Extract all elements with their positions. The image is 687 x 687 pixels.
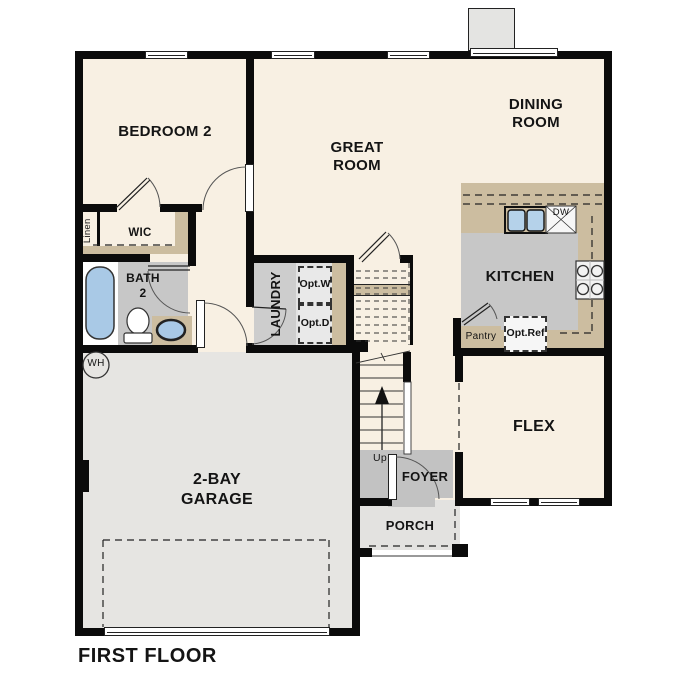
label-great-room: GREAT ROOM bbox=[307, 139, 407, 176]
kitchen-sink-basin-left bbox=[508, 210, 525, 231]
opt-dryer-label-2: D bbox=[322, 317, 330, 329]
label-up: Up bbox=[366, 452, 394, 465]
kitchen-sink-basin-right bbox=[527, 210, 544, 231]
opt-washer-label-1: Opt. bbox=[300, 278, 321, 290]
toilet-tank bbox=[124, 333, 152, 343]
toilet-bowl bbox=[127, 308, 149, 334]
wic-door-arc bbox=[148, 178, 160, 207]
label-bath2: BATH 2 bbox=[121, 271, 165, 300]
label-wh: WH bbox=[85, 358, 107, 370]
label-pantry: Pantry bbox=[459, 331, 503, 343]
opt-ref-label-1: Opt. bbox=[507, 327, 528, 339]
stairs-break-line bbox=[356, 351, 410, 363]
stairs-upper-dashed-treads bbox=[356, 263, 409, 345]
label-linen: Linen bbox=[82, 209, 94, 253]
label-dining-room: DINING ROOM bbox=[486, 96, 586, 133]
opt-ref-label-2: Ref bbox=[528, 327, 545, 339]
stairs-door-leaf bbox=[359, 232, 389, 262]
opt-dryer-box: Opt.D bbox=[298, 304, 332, 344]
pantry-door-leaf bbox=[462, 303, 490, 325]
pantry-door-arc bbox=[489, 304, 497, 319]
label-garage: 2-BAY GARAGE bbox=[157, 470, 277, 509]
opt-ref-box: Opt.Ref bbox=[504, 316, 547, 352]
bedroom2-door-arc bbox=[203, 167, 246, 210]
label-flex: FLEX bbox=[484, 417, 584, 437]
label-wic: WIC bbox=[110, 226, 170, 240]
bath-sink bbox=[157, 320, 185, 340]
stairs-handrail bbox=[404, 382, 411, 454]
label-foyer: FOYER bbox=[383, 469, 467, 485]
opt-washer-box: Opt.W bbox=[298, 266, 332, 304]
label-kitchen: KITCHEN bbox=[460, 268, 580, 286]
stairs-door-arc bbox=[388, 233, 400, 259]
dashed-lines bbox=[93, 195, 603, 627]
stairs bbox=[356, 263, 411, 454]
opt-dryer-label-1: Opt. bbox=[301, 317, 322, 329]
garage-door-track bbox=[103, 540, 329, 627]
stairs-up-arrow-head bbox=[375, 386, 389, 404]
label-porch: PORCH bbox=[368, 518, 452, 534]
floor-plan: Opt.W Opt.D Opt.Ref BEDROOM 2 GREAT ROOM… bbox=[0, 0, 687, 687]
opt-washer-label-2: W bbox=[321, 278, 331, 290]
plan-title: FIRST FLOOR bbox=[78, 644, 318, 668]
label-dw: DW bbox=[548, 207, 574, 219]
wic-door-leaf bbox=[116, 178, 150, 210]
hall-garage-door-arc bbox=[204, 303, 247, 346]
bath2-door-leaf bbox=[148, 266, 190, 270]
label-laundry: LAUNDRY bbox=[268, 262, 284, 346]
label-bedroom2: BEDROOM 2 bbox=[95, 123, 235, 141]
bathtub bbox=[86, 267, 114, 339]
